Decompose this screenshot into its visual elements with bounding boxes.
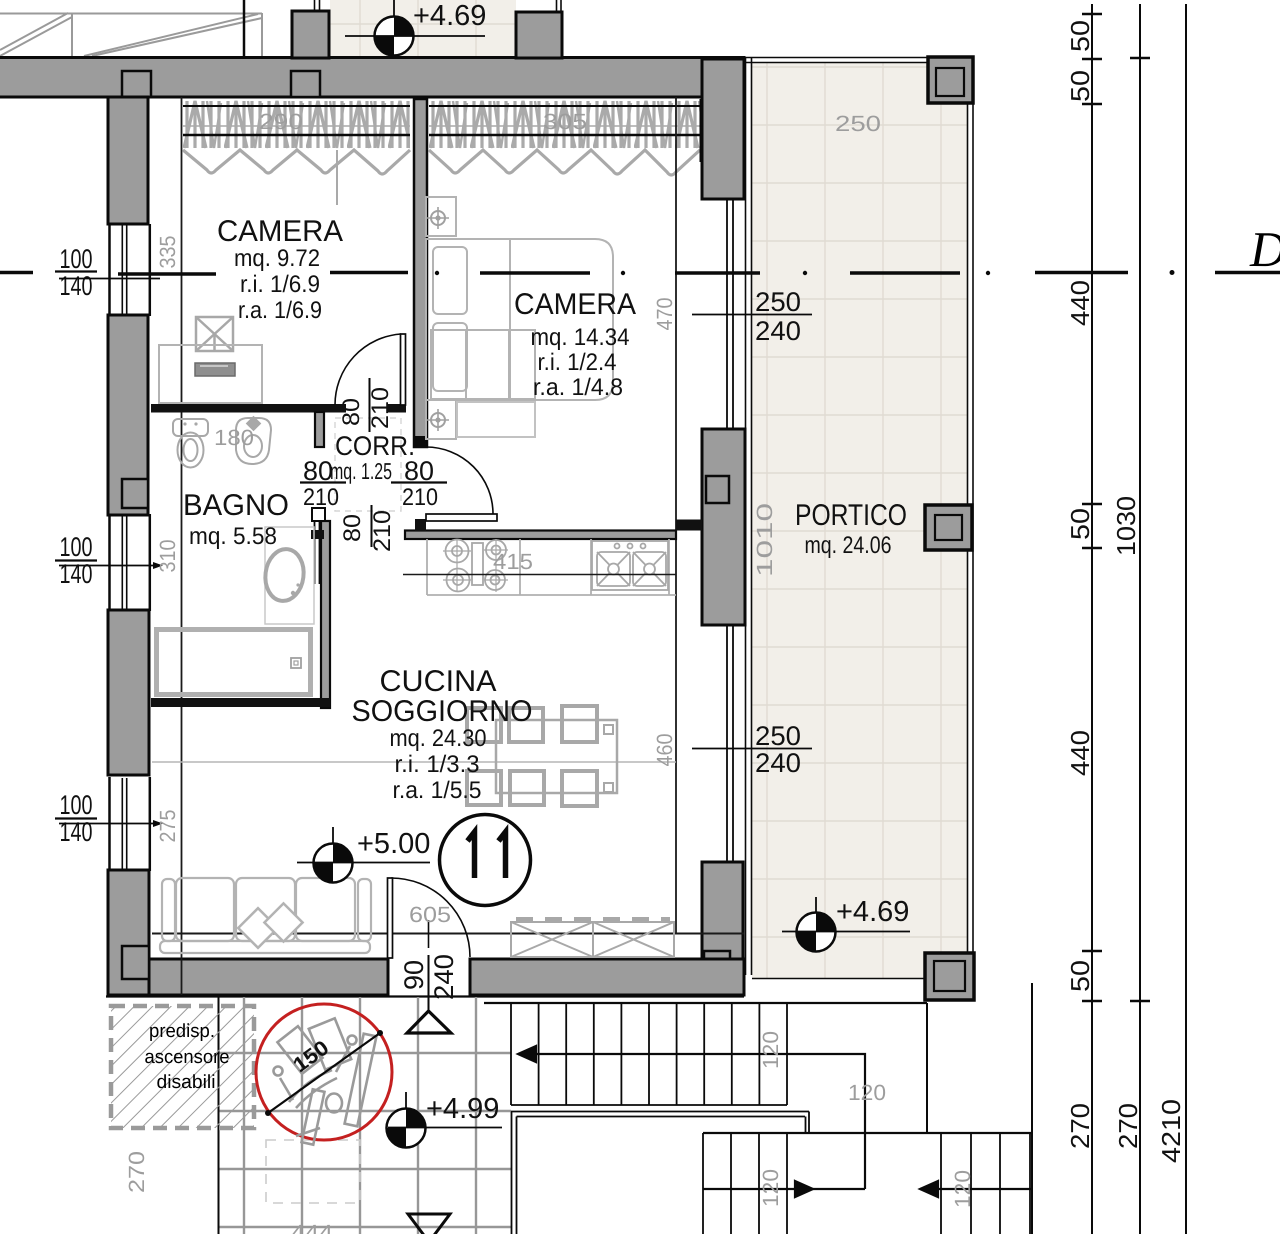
- svg-text:250: 250: [755, 287, 801, 317]
- svg-text:100: 100: [60, 532, 93, 562]
- svg-text:415: 415: [493, 549, 533, 574]
- svg-text:240: 240: [755, 316, 801, 346]
- svg-text:r.i. 1/2.4: r.i. 1/2.4: [538, 349, 617, 376]
- svg-text:90: 90: [399, 960, 429, 990]
- svg-text:mq. 24.30: mq. 24.30: [390, 725, 487, 752]
- svg-text:444: 444: [291, 1220, 333, 1234]
- svg-text:100: 100: [60, 244, 93, 274]
- svg-text:180: 180: [214, 425, 254, 450]
- svg-text:disabili: disabili: [157, 1072, 216, 1093]
- svg-text:mq. 14.34: mq. 14.34: [531, 324, 630, 351]
- svg-text:50: 50: [1065, 20, 1095, 52]
- svg-text:CUCINA: CUCINA: [380, 665, 497, 698]
- svg-text:50: 50: [1065, 508, 1095, 540]
- svg-text:1030: 1030: [1111, 496, 1141, 556]
- svg-text:140: 140: [60, 271, 93, 301]
- svg-text:CAMERA: CAMERA: [217, 215, 343, 248]
- svg-text:470: 470: [652, 298, 677, 331]
- svg-text:120: 120: [758, 1169, 783, 1207]
- svg-text:SOGGIORNO: SOGGIORNO: [352, 695, 533, 728]
- svg-text:120: 120: [848, 1080, 886, 1105]
- svg-text:240: 240: [755, 748, 801, 778]
- svg-text:605: 605: [409, 902, 451, 927]
- svg-text:120: 120: [950, 1170, 975, 1208]
- svg-text:305: 305: [543, 109, 587, 134]
- svg-text:+4.99: +4.99: [426, 1093, 499, 1125]
- svg-text:140: 140: [60, 559, 93, 589]
- svg-text:predisp.: predisp.: [149, 1021, 215, 1042]
- svg-text:r.a. 1/4.8: r.a. 1/4.8: [533, 374, 623, 401]
- svg-text:290: 290: [259, 109, 303, 134]
- svg-text:mq. 9.72: mq. 9.72: [234, 245, 320, 272]
- svg-text:mq. 24.06: mq. 24.06: [805, 532, 892, 559]
- svg-text:+5.00: +5.00: [357, 828, 430, 860]
- svg-text:270: 270: [124, 1151, 149, 1193]
- svg-text:PORTICO: PORTICO: [795, 499, 907, 532]
- svg-text:140: 140: [60, 817, 93, 847]
- svg-text:270: 270: [1113, 1103, 1143, 1149]
- svg-text:440: 440: [1065, 280, 1095, 326]
- svg-text:r.a. 1/5.5: r.a. 1/5.5: [393, 777, 482, 804]
- svg-text:r.i. 1/3.3: r.i. 1/3.3: [395, 751, 480, 778]
- svg-text:240: 240: [429, 954, 459, 1000]
- svg-text:250: 250: [835, 111, 881, 136]
- svg-text:50: 50: [1065, 70, 1095, 102]
- svg-text:460: 460: [652, 734, 677, 767]
- svg-text:mq. 1.25: mq. 1.25: [330, 458, 392, 484]
- svg-text:120: 120: [758, 1031, 783, 1069]
- svg-text:r.i. 1/6.9: r.i. 1/6.9: [240, 271, 320, 298]
- svg-text:CORR.: CORR.: [335, 431, 415, 461]
- svg-text:80: 80: [338, 398, 365, 426]
- svg-text:mq. 5.58: mq. 5.58: [189, 523, 277, 550]
- svg-text:+4.69: +4.69: [413, 0, 486, 32]
- svg-text:210: 210: [402, 484, 438, 511]
- svg-text:80: 80: [339, 514, 366, 542]
- svg-text:210: 210: [367, 387, 394, 429]
- svg-text:+4.69: +4.69: [836, 896, 909, 928]
- svg-text:310: 310: [155, 540, 180, 573]
- svg-text:50: 50: [1065, 960, 1095, 992]
- svg-text:210: 210: [303, 484, 339, 511]
- svg-text:440: 440: [1065, 730, 1095, 776]
- svg-text:270: 270: [1065, 1103, 1095, 1149]
- svg-text:4210: 4210: [1156, 1099, 1186, 1163]
- svg-text:ascensore: ascensore: [145, 1047, 230, 1068]
- svg-text:275: 275: [155, 810, 180, 843]
- svg-text:100: 100: [60, 790, 93, 820]
- svg-text:335: 335: [155, 236, 180, 269]
- svg-text:D: D: [1249, 221, 1280, 277]
- svg-text:r.a. 1/6.9: r.a. 1/6.9: [238, 297, 322, 324]
- svg-text:210: 210: [369, 510, 396, 552]
- svg-text:1010: 1010: [752, 503, 777, 577]
- svg-text:CAMERA: CAMERA: [514, 288, 636, 321]
- svg-text:250: 250: [755, 721, 801, 751]
- svg-text:BAGNO: BAGNO: [183, 489, 289, 522]
